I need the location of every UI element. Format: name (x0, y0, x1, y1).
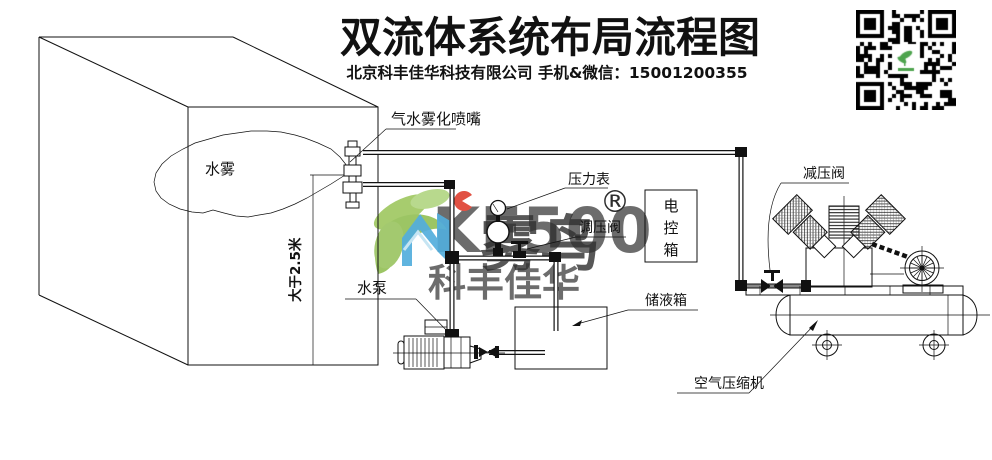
regulating-valve-label: 调压阀 (579, 220, 621, 236)
water-pump-label: 水泵 (357, 279, 387, 297)
control-box: 电 控 箱 (645, 190, 697, 262)
air-compressor-callout: 空气压缩机 (677, 320, 818, 393)
height-note: 大于2.5米 (287, 237, 304, 302)
mist-cloud: 水雾 (154, 131, 351, 217)
page-title: 双流体系统布局流程图 (340, 13, 760, 62)
qr-code-canvas (856, 10, 956, 110)
room-box (39, 37, 378, 365)
storage-tank (515, 307, 607, 369)
control-box-char: 箱 (663, 241, 678, 259)
flow-diagram-page: KF500 雾鸟 ® 科丰佳华 双流体系统布局流程图 北京科丰佳华科技有限公司 … (0, 0, 992, 460)
control-box-char: 电 (663, 197, 678, 215)
control-box-char: 控 (663, 219, 678, 237)
qr-code (856, 10, 956, 110)
diagram-canvas: KF500 雾鸟 ® 科丰佳华 双流体系统布局流程图 北京科丰佳华科技有限公司 … (0, 0, 992, 460)
storage-tank-callout: 储液箱 (572, 293, 698, 326)
air-compressor-label: 空气压缩机 (694, 376, 764, 392)
page-subtitle: 北京科丰佳华科技有限公司 手机&微信：15001200355 (346, 63, 747, 82)
air-compressor (746, 195, 990, 360)
pressure-gauge (491, 201, 506, 216)
storage-tank-label: 储液箱 (645, 293, 687, 309)
title-block: 双流体系统布局流程图 北京科丰佳华科技有限公司 手机&微信：1500120035… (340, 13, 760, 82)
registered-trademark-icon: ® (600, 185, 630, 220)
pressure-gauge-label: 压力表 (568, 172, 610, 188)
watermark-logo: KF500 雾鸟 ® 科丰佳华 (369, 185, 652, 305)
reducing-valve-label: 减压阀 (803, 166, 845, 182)
water-pump (393, 320, 505, 369)
reducing-valve (761, 270, 783, 293)
receiver-tank (770, 295, 990, 335)
mist-label: 水雾 (205, 160, 235, 178)
nozzle-label: 气水雾化喷嘴 (391, 110, 481, 128)
